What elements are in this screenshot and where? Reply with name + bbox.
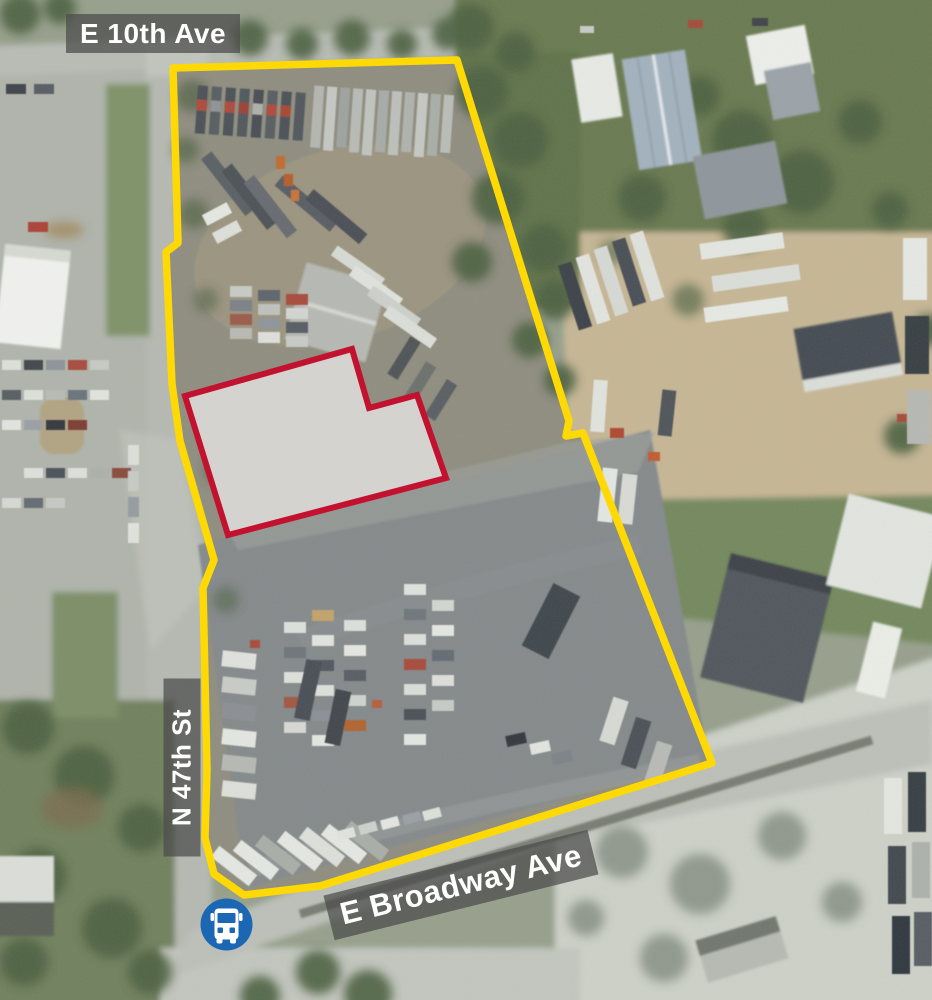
photo-grain xyxy=(0,0,932,1000)
satellite-imagery xyxy=(0,0,932,1000)
street-label-n-47th-st: N 47th St xyxy=(164,679,201,857)
bus-stop-marker[interactable] xyxy=(200,898,253,951)
street-label-e-10th-ave: E 10th Ave xyxy=(66,14,240,53)
aerial-property-map: E 10th Ave N 47th St E Broadway Ave xyxy=(0,0,932,1000)
bus-icon xyxy=(200,898,253,951)
